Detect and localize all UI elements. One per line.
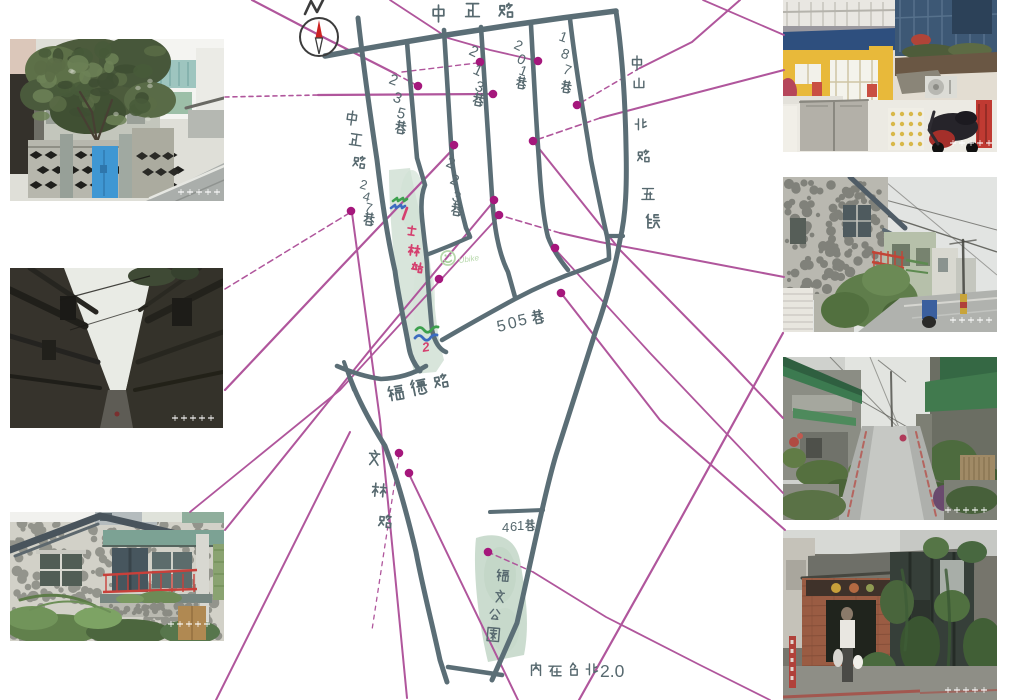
svg-text:2.0: 2.0 (600, 661, 625, 681)
svg-text:4: 4 (502, 520, 509, 535)
svg-text:1: 1 (517, 518, 524, 533)
